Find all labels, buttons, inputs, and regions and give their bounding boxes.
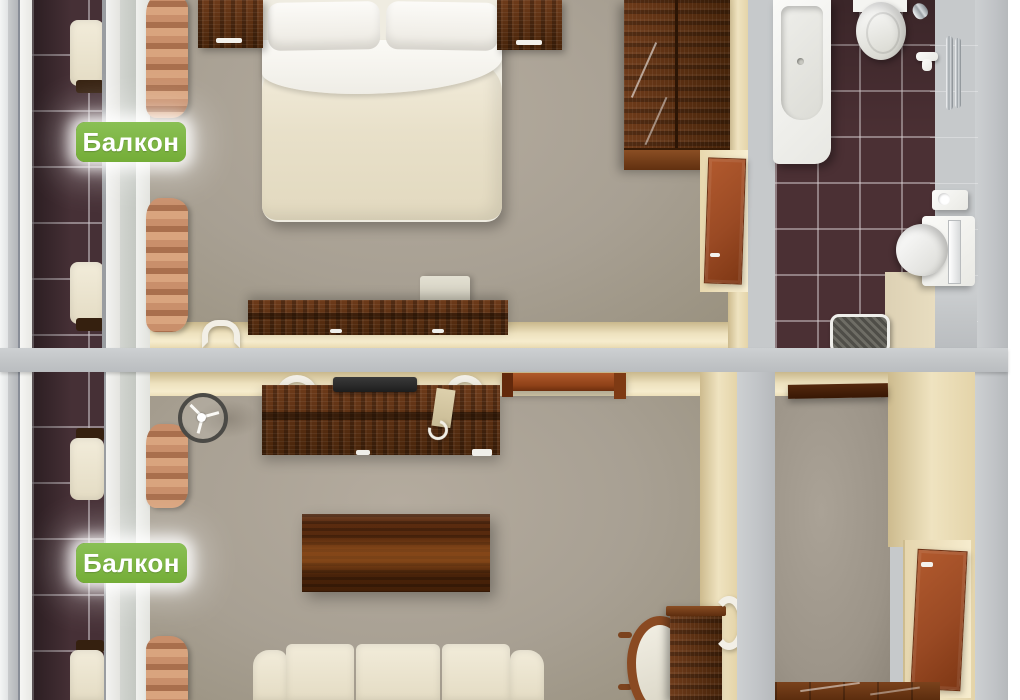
bedroom-east-wall xyxy=(728,0,748,348)
living-desk xyxy=(262,385,500,455)
wardrobe-frame xyxy=(624,148,730,170)
nightstand xyxy=(497,0,562,50)
desk-chair-stool xyxy=(420,276,470,304)
cabinet xyxy=(670,606,722,700)
nightstand xyxy=(198,0,263,48)
window-glass xyxy=(150,158,163,208)
sofa-armrest xyxy=(253,650,287,700)
hallway-wood-floor xyxy=(775,682,940,700)
canvas-edge xyxy=(1008,0,1020,700)
wall-sconce xyxy=(712,596,746,650)
balcony-tile-floor xyxy=(32,0,104,348)
pillow xyxy=(268,1,381,51)
coffee-table xyxy=(302,514,490,592)
wall-sconce xyxy=(202,320,240,348)
hallway-east-wall-lower xyxy=(903,540,975,700)
fan-blade xyxy=(197,417,204,434)
curtain xyxy=(146,636,188,700)
toilet-tank xyxy=(853,0,907,12)
sink-mirror xyxy=(948,220,961,284)
desk-chair xyxy=(446,375,484,411)
sofa-back-cushion xyxy=(442,644,510,700)
balcony-label-upper-text: Балкон xyxy=(83,127,180,158)
shelf-cup xyxy=(938,193,950,205)
bathtub-drain xyxy=(797,58,804,65)
sofa-back-cushion xyxy=(356,644,440,700)
sofa-back-cushion xyxy=(286,644,354,700)
living-north-wall xyxy=(150,372,737,398)
desk-chair xyxy=(277,375,317,411)
fan-blade xyxy=(202,411,219,418)
window-glass xyxy=(150,582,163,626)
living-east-wall xyxy=(700,372,737,700)
hallway-north-wall xyxy=(775,372,975,398)
bathtub xyxy=(773,0,831,164)
balcony-chair-frame xyxy=(76,80,104,93)
toilet-seat-line xyxy=(866,12,900,54)
nightstand-handle xyxy=(216,38,242,43)
fan-blade xyxy=(189,404,203,418)
toilet-paper-holder xyxy=(916,52,938,61)
balcony-chair-frame xyxy=(76,428,104,441)
fan xyxy=(178,393,228,443)
curtain xyxy=(146,0,188,118)
dresser-handle xyxy=(330,329,342,333)
cabinet-top-edge xyxy=(666,606,726,616)
entry-door xyxy=(910,549,967,691)
laptop xyxy=(333,377,417,392)
wall-shelf-bracket xyxy=(502,373,513,397)
bedroom-dresser xyxy=(248,300,508,335)
side-chair xyxy=(627,616,693,700)
wardrobe-highlight xyxy=(631,42,657,98)
wood-floor-highlight xyxy=(800,682,860,692)
toilet-brush xyxy=(910,0,931,21)
duvet xyxy=(262,62,502,220)
bed-base xyxy=(262,0,502,222)
curtain xyxy=(146,424,188,508)
door-handle xyxy=(710,253,720,257)
desk-handle xyxy=(472,449,492,456)
bedroom-door-niche xyxy=(700,150,748,292)
nightstand-handle xyxy=(516,40,542,45)
hallway-west-wall xyxy=(737,372,775,700)
balcony-chair-frame xyxy=(76,318,104,331)
pillow xyxy=(386,1,499,51)
sink-bowl xyxy=(896,224,948,276)
fan-hub xyxy=(197,413,206,422)
wardrobe xyxy=(624,0,730,168)
hallway-shelf xyxy=(788,383,888,399)
living-floor xyxy=(150,396,703,700)
balcony-chair xyxy=(70,20,104,86)
towel-rail xyxy=(955,38,961,108)
balcony-label-upper: Балкон xyxy=(76,122,186,162)
bedroom-door xyxy=(704,157,746,284)
hallway-floor xyxy=(775,396,890,684)
fan-shadow xyxy=(196,400,260,438)
toilet-bowl xyxy=(856,2,906,60)
wardrobe-divider xyxy=(675,0,678,150)
paper-cord xyxy=(424,416,451,443)
window-glass xyxy=(150,630,163,652)
desk-handle xyxy=(356,450,370,455)
curtain xyxy=(146,198,188,332)
dresser-groove xyxy=(248,313,508,319)
balcony-chair-frame xyxy=(76,640,104,653)
towel-rail xyxy=(946,36,953,110)
bathroom-shelf xyxy=(932,190,968,210)
balcony-label-lower-text: Балкон xyxy=(83,548,180,579)
hallway-east-wall xyxy=(888,372,975,547)
balcony-label-lower: Балкон xyxy=(76,543,187,583)
desk-paper xyxy=(431,388,455,428)
dresser-handle xyxy=(432,329,444,333)
sofa-armrest xyxy=(510,650,544,700)
wall-shelf-bracket xyxy=(614,373,626,399)
wardrobe-highlight xyxy=(645,97,668,145)
sink-counter xyxy=(922,216,975,286)
bed-sheet-fold xyxy=(262,40,502,94)
bedroom-floor xyxy=(150,0,730,330)
floor-divider-wall xyxy=(0,348,1008,372)
entry-door-handle xyxy=(921,562,933,567)
bathtub-basin xyxy=(781,6,823,120)
window-glass xyxy=(150,55,163,113)
wall-shelf xyxy=(502,373,626,391)
entry-door-frame xyxy=(905,540,971,698)
floorplan-render: Балкон Балкон xyxy=(0,0,1020,700)
balcony-chair xyxy=(70,650,104,700)
bathroom-vanity-floor xyxy=(885,272,935,348)
bathroom-corner-wall xyxy=(935,284,977,348)
bathroom-tile-wall xyxy=(930,0,978,348)
wood-floor-highlight xyxy=(870,687,920,696)
balcony-tile-floor xyxy=(32,372,104,700)
side-chair-leg xyxy=(618,684,632,690)
bathroom-tile-floor xyxy=(775,0,935,348)
desk-groove xyxy=(262,412,500,420)
window-glass xyxy=(150,498,163,538)
bedroom-south-wall xyxy=(150,322,748,348)
balcony-chair xyxy=(70,438,104,500)
balcony-chair xyxy=(70,262,104,324)
toilet-paper-roll xyxy=(922,59,932,71)
side-chair-leg xyxy=(618,632,632,638)
